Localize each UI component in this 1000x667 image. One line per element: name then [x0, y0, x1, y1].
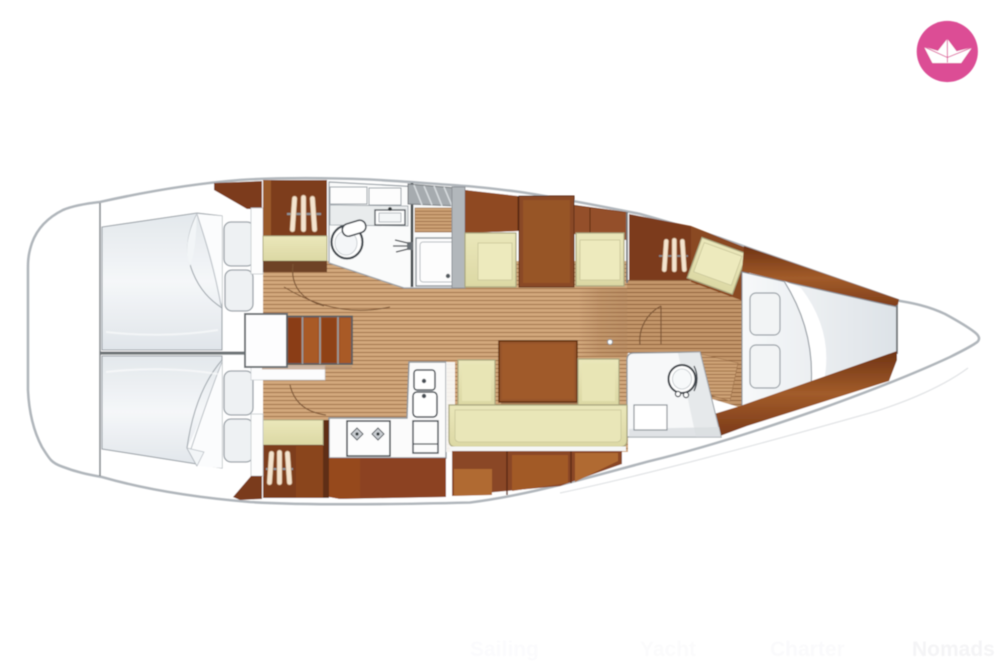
svg-text:Sailing: Sailing — [470, 638, 539, 661]
svg-text:Charter: Charter — [770, 638, 845, 661]
svg-text:Nomads: Nomads — [912, 638, 995, 661]
svg-text:Yacht: Yacht — [640, 638, 696, 661]
